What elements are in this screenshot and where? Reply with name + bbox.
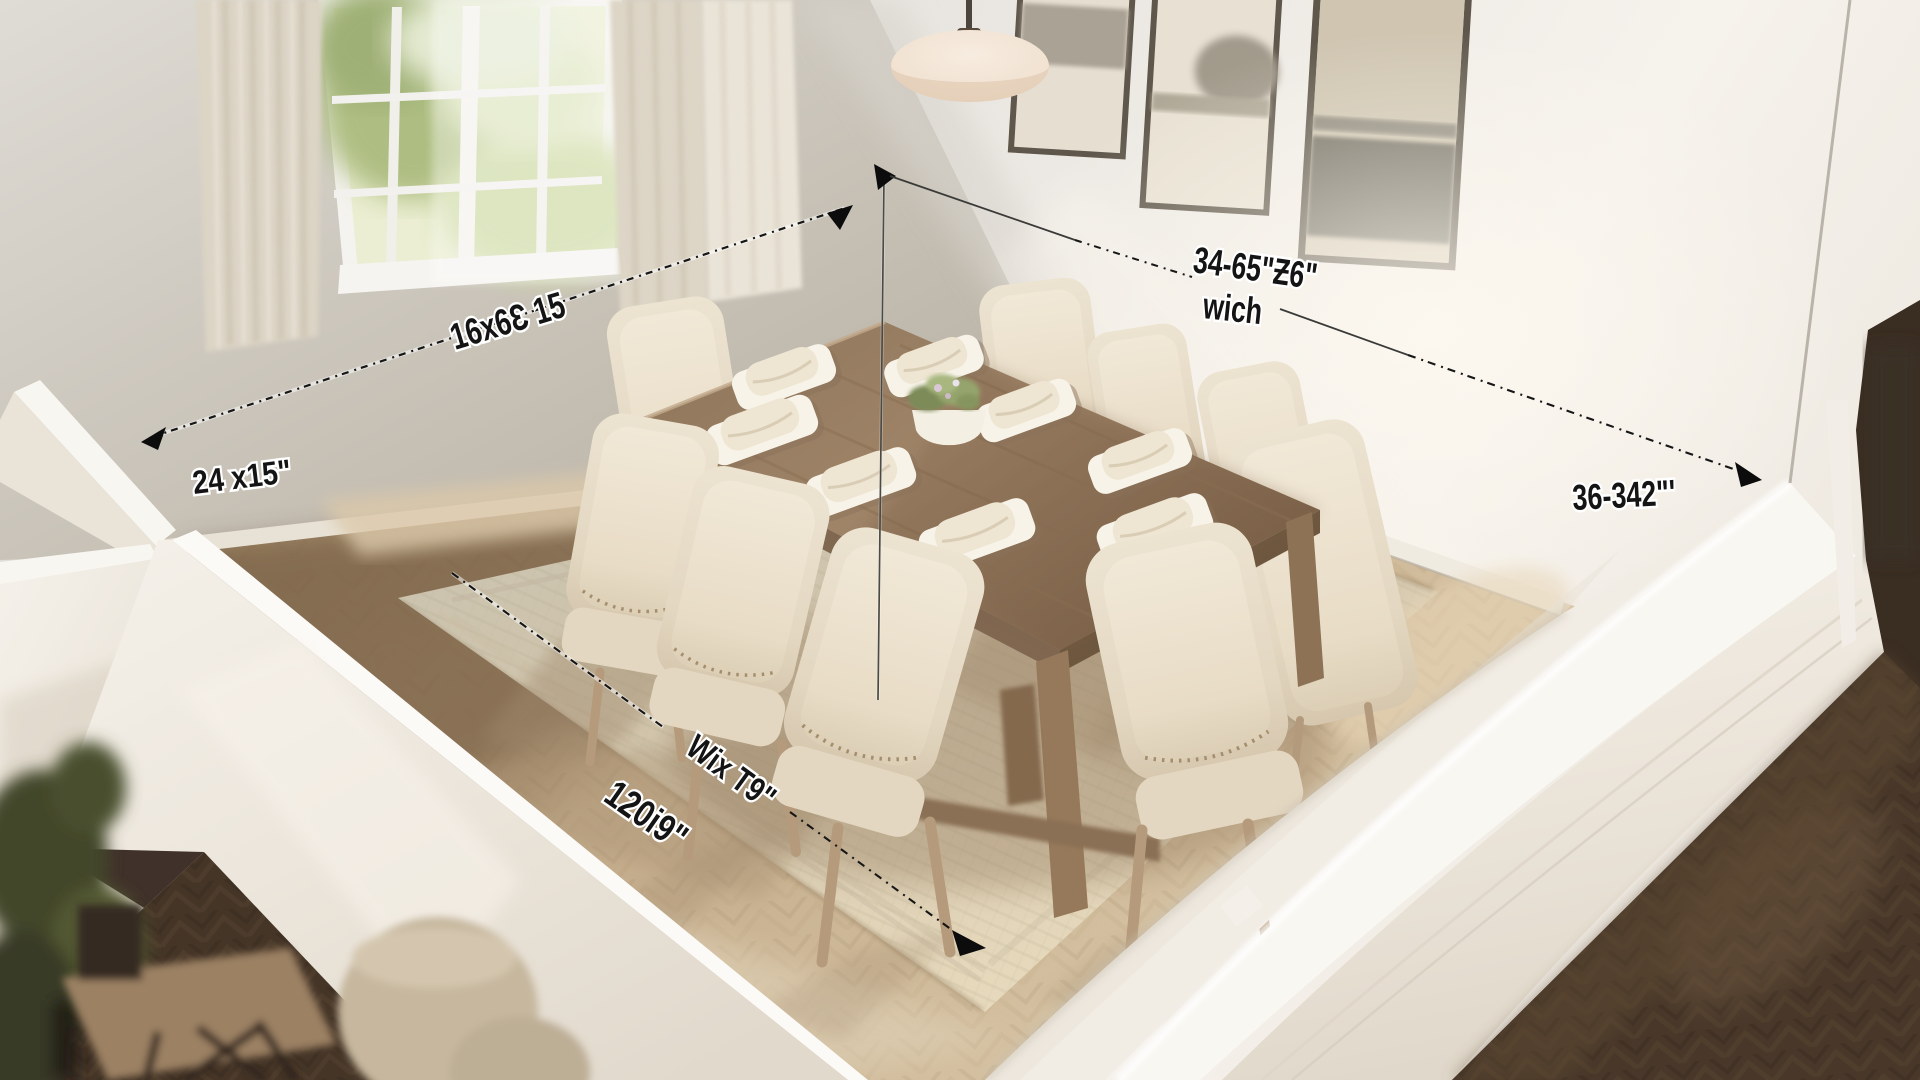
svg-text:wich: wich — [1200, 285, 1264, 332]
svg-text:36-342"': 36-342"' — [1571, 472, 1676, 518]
